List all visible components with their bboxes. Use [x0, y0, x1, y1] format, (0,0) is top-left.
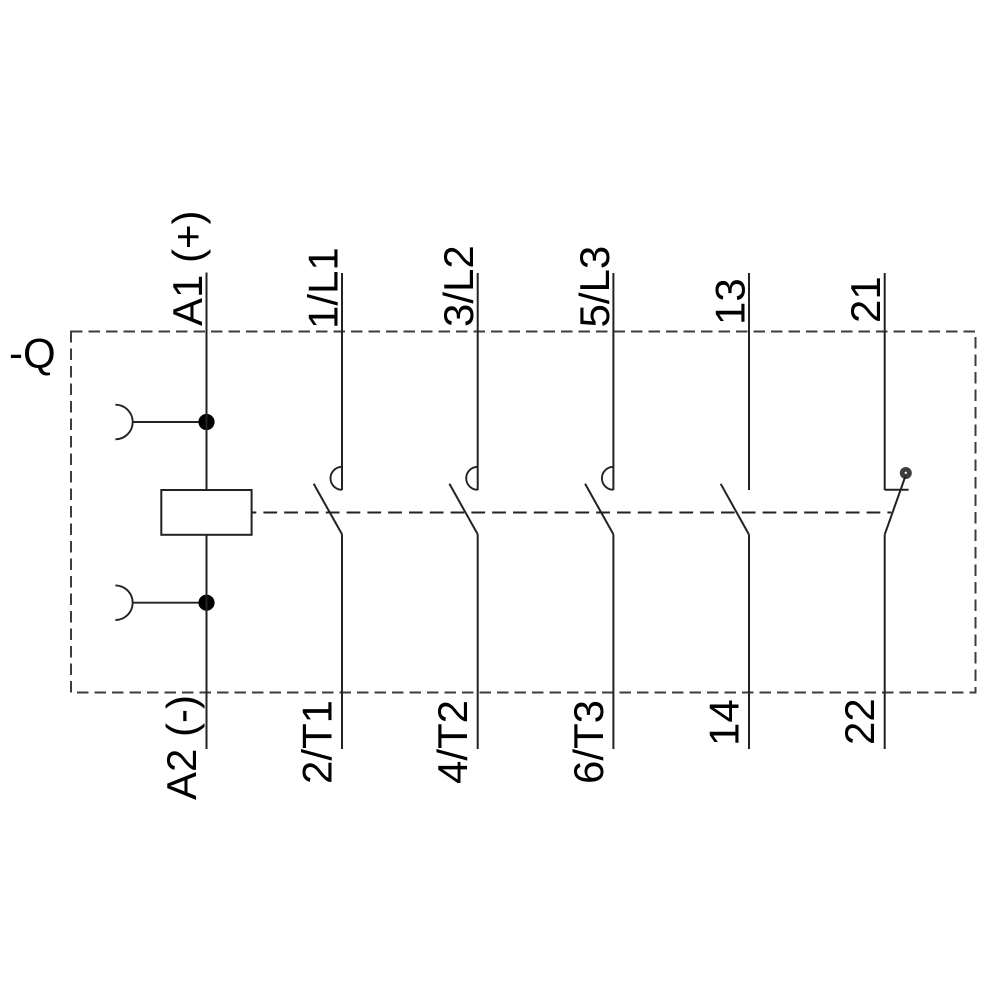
svg-text:2/T1: 2/T1 — [294, 700, 341, 784]
svg-text:21: 21 — [842, 276, 889, 323]
svg-text:13: 13 — [707, 278, 754, 325]
svg-text:5/L3: 5/L3 — [571, 246, 618, 328]
svg-text:14: 14 — [701, 699, 748, 746]
svg-text:1/L1: 1/L1 — [300, 247, 347, 329]
svg-text:A2 (-): A2 (-) — [158, 695, 205, 800]
svg-text:A1 (+): A1 (+) — [164, 210, 211, 326]
svg-text:3/L2: 3/L2 — [435, 245, 482, 327]
svg-text:4/T2: 4/T2 — [429, 700, 476, 784]
svg-text:6/T3: 6/T3 — [565, 700, 612, 784]
svg-text:22: 22 — [836, 698, 883, 745]
svg-text:-Q: -Q — [9, 330, 56, 377]
